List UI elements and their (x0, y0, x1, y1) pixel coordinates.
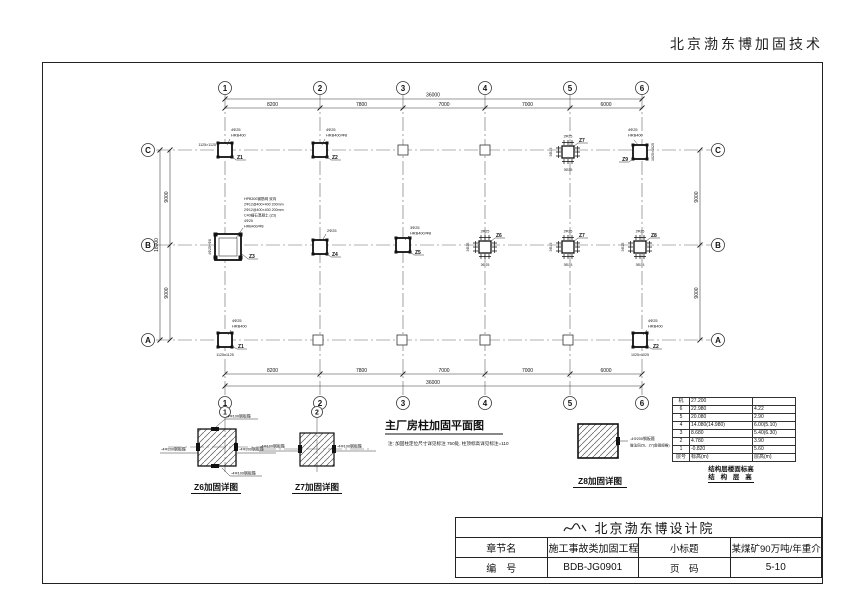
column-marker-z9-c: 4Φ25 HRB400 1025×1025 Z9 (619, 127, 655, 163)
cluster-annotation: 3Φ25 (621, 243, 625, 252)
column-marker-z2-c: 4Φ25 HRB400/Φ8 Z2 (312, 127, 348, 161)
dimension-label: 9000 (694, 191, 700, 202)
dimension-label: 9000 (164, 287, 170, 298)
axis-bubbles-bottom: 1 2 3 4 5 6 (219, 397, 649, 410)
dimension-label: 7000 (522, 102, 533, 108)
title-block: 北京渤东博设计院 章节名 施工事故类加固工程 小标题 某煤矿90万吨/年重介选煤… (455, 517, 822, 578)
table-row: 38.6805.40(6.30) (673, 430, 796, 438)
table-row: 机27.200 (673, 398, 796, 406)
axis-bubbles-left: C B A (142, 144, 155, 347)
detail-leader-label: -4Φ100钢板箍 (337, 444, 362, 449)
column-size-label: 1025×1025 (631, 353, 649, 357)
axis-bubble: 4 (483, 399, 488, 408)
dimension-label: 18000 (154, 238, 160, 252)
dimension-label: 36000 (426, 380, 440, 386)
column-size-label: 1125×1125 (198, 143, 216, 147)
detail-leader-label: 做法同Z6、Z7(角钢规格) (630, 443, 670, 448)
table-row: 1-0.8205.60 (673, 446, 796, 454)
cluster-annotation: 2Φ25 (564, 135, 573, 139)
column-label: Z7 (579, 233, 585, 239)
column-marker-z1-c: 4Φ25 HRB400 1125×1125 Z1 (198, 127, 246, 161)
axis-bubble: B (145, 241, 151, 250)
floor-cell: 4.22 (753, 406, 796, 414)
institute-row: 北京渤东博设计院 (456, 518, 822, 538)
axis-bubble: 6 (640, 84, 645, 93)
floor-cell: 3 (673, 430, 690, 438)
floor-elevation-table: 机27.200 622.9804.22 520.0802.90 414.080(… (672, 397, 790, 483)
column-label: Z1 (238, 344, 244, 350)
cluster-annotation: 3Φ25 (564, 168, 573, 172)
column-annotation: HRB400/Φ8 (244, 225, 263, 229)
detail-title: Z8加固详图 (578, 476, 622, 486)
axis-bubble: A (715, 336, 721, 345)
dimension-label: 9000 (694, 287, 700, 298)
cluster-annotation: 3Φ25 (549, 243, 553, 252)
column-label: Z9 (622, 157, 628, 163)
column-marker-z4: 2Φ25 Z4 (312, 228, 342, 258)
column-marker-z1-a: 4Φ25 HRB400 1125×1125 Z1 (216, 318, 247, 357)
floor-cell: 5.60 (753, 446, 796, 454)
floor-cell: 5 (673, 414, 690, 422)
column-label: Z8 (651, 233, 657, 239)
detail-z7: 2 -4Φ100钢板箍 -4Φ100钢板箍 Z7加固详图 (259, 407, 376, 494)
column-label: Z6 (496, 233, 502, 239)
column-annotation: HPB300钢筋网 双向 (244, 196, 277, 201)
column-marker-z7: 2Φ25 3Φ25 3Φ25 Z7 (549, 230, 588, 268)
dimension-label: 7800 (356, 368, 367, 374)
cluster-annotation: 3Φ25 (466, 243, 470, 252)
column-marker-z7-c: 2Φ25 3Φ25 3Φ25 Z7 (549, 135, 588, 173)
titleblock-value: 某煤矿90万吨/年重介选煤厂加固说明 (730, 538, 822, 558)
column-annotation: 4Φ25 (232, 318, 242, 323)
column-side-annotation: 4Φ25+Φ8 (208, 239, 212, 255)
axis-bubble: 3 (401, 84, 406, 93)
table-row: 24.7803.90 (673, 438, 796, 446)
dimension-label: 8200 (267, 102, 278, 108)
column-annotation: 4Φ25 (231, 127, 241, 132)
detail-title: Z6加固详图 (194, 482, 238, 492)
table-row: 414.080(14.980)6.00(5.10) (673, 422, 796, 430)
column-annotation: 4Φ25 (648, 318, 658, 323)
detail-z6: 1 -4Φ100钢板箍 -4Φ200钢板箍 -4Φ200钢板箍 -4Φ100钢板… (160, 407, 276, 494)
titleblock-label: 编 号 (456, 558, 548, 578)
floor-cell: 22.980 (690, 406, 753, 414)
column-marker-z5: 3Φ25 HRB400/Φ8 Z5 (395, 225, 432, 256)
column-label: Z1 (237, 155, 243, 161)
floor-table-caption: 结构层楼面标高 (672, 466, 790, 474)
floor-cell: 4 (673, 422, 690, 430)
column-annotation: 4Φ25 (244, 219, 253, 223)
detail-z8: -4Φ200钢板箍 做法同Z6、Z7(角钢规格) Z8加固详图 (573, 424, 670, 488)
axis-bubble: 2 (315, 410, 319, 417)
detail-leader-label: -4Φ100钢板箍 (260, 444, 285, 449)
column-annotation: C40细石混凝土 (Z3) (244, 213, 276, 218)
floor-cell: 层高(m) (753, 454, 796, 462)
dimensions-bottom: 8200 7800 7000 7000 6000 36000 (223, 368, 645, 389)
column-marker-z8: 2Φ25 3Φ25 3Φ25 Z8 (621, 230, 660, 268)
column-label: Z2 (332, 155, 338, 161)
column-annotation: HRB400 (648, 324, 664, 329)
axis-bubble: B (715, 241, 721, 250)
column-label: Z3 (249, 254, 255, 260)
column-annotation: HRB400 (231, 133, 247, 138)
dimension-label: 6000 (600, 368, 611, 374)
dimensions-top: 36000 8200 7800 7000 7000 6000 (223, 93, 645, 111)
column-marker-z3: HPB300钢筋网 双向 2Φ12@400×400 200mm 2Φ12@400… (208, 196, 284, 260)
plan-title: 主厂房柱加固平面图 (385, 418, 484, 432)
floor-cell: 6.00(5.10) (753, 422, 796, 430)
floor-cell: 8.680 (690, 430, 753, 438)
cluster-annotation: 3Φ25 (636, 263, 645, 267)
dimension-label: 7000 (438, 102, 449, 108)
axis-bubble: 3 (401, 399, 406, 408)
axis-bubble: 2 (318, 84, 323, 93)
axis-bubble: C (145, 146, 151, 155)
titleblock-value: 5-10 (730, 558, 822, 578)
detail-leader-label: -4Φ100钢板箍 (226, 414, 251, 419)
column-label: Z7 (579, 138, 585, 144)
floor-cell (753, 398, 796, 406)
axis-bubble: A (145, 336, 151, 345)
table-row: 622.9804.22 (673, 406, 796, 414)
plan-title-group: 主厂房柱加固平面图 注: 加固柱定位尺寸详见标注 750处, 柱顶标高详见标注=… (385, 418, 509, 447)
cluster-annotation: 2Φ25 (564, 230, 573, 234)
cluster-annotation: 3Φ25 (564, 263, 573, 267)
titleblock-value: BDB-JG0901 (547, 558, 639, 578)
column-label: Z5 (415, 250, 421, 256)
column-marker-z2-a: 4Φ25 HRB400 1025×1025 Z2 (631, 318, 664, 357)
dimension-label: 7000 (522, 368, 533, 374)
axis-bubble: 4 (483, 84, 488, 93)
dimension-label: 7000 (438, 368, 449, 374)
column-annotation: 2Φ25 (327, 228, 337, 233)
column-label: Z2 (653, 344, 659, 350)
plan-note: 注: 加固柱定位尺寸详见标注 750处, 柱顶标高详见标注=110 (388, 440, 509, 447)
floor-cell: 6 (673, 406, 690, 414)
floor-cell: 1 (673, 446, 690, 454)
detail-leader-label: -4Φ200钢板箍 (630, 436, 655, 441)
titleblock-label: 章节名 (456, 538, 548, 558)
cluster-annotation: 2Φ25 (481, 230, 490, 234)
floor-cell: 2 (673, 438, 690, 446)
table-row: 层号标高(m)层高(m) (673, 454, 796, 462)
dimension-label: 8200 (267, 368, 278, 374)
titleblock-value: 施工事故类加固工程 (547, 538, 639, 558)
column-size-label: 1025×1025 (651, 143, 655, 161)
floor-cell: 14.080(14.980) (690, 422, 753, 430)
institute-name: 北京渤东博设计院 (594, 518, 714, 537)
institute-logo-icon (562, 521, 588, 535)
floor-cell: 层号 (673, 454, 690, 462)
axis-bubble: 6 (640, 399, 645, 408)
floor-cell: 标高(m) (690, 454, 753, 462)
floor-cell: 3.90 (753, 438, 796, 446)
drawing-sheet-page: 北京渤东博加固技术 (0, 0, 863, 609)
floor-cell: 机 (673, 398, 690, 406)
floor-cell: 27.200 (690, 398, 753, 406)
dimension-label: 9000 (164, 191, 170, 202)
cluster-annotation: 3Φ25 (549, 148, 553, 157)
column-annotation: HRB400/Φ8 (410, 231, 431, 236)
detail-leader-label: -4Φ100钢板箍 (231, 471, 256, 476)
column-annotation: HRB400/Φ8 (326, 133, 347, 138)
cluster-annotation: 3Φ25 (481, 263, 490, 267)
axis-bubble: 5 (568, 84, 573, 93)
floor-table-caption: 结 构 层 高 (708, 474, 753, 483)
column-annotation: HRB400 (628, 133, 644, 138)
titleblock-label: 小标题 (639, 538, 731, 558)
detail-title: Z7加固详图 (295, 482, 339, 492)
axis-bubble: 5 (568, 399, 573, 408)
floor-cell: 5.40(6.30) (753, 430, 796, 438)
dimension-label: 7800 (356, 102, 367, 108)
table-row: 520.0802.90 (673, 414, 796, 422)
column-marker-z6: 2Φ25 3Φ25 3Φ25 Z6 (466, 230, 505, 268)
column-annotation: 3Φ25 (410, 225, 420, 230)
column-annotation: 2Φ12@400×400 200mm (244, 203, 284, 207)
column-size-label: 1125×1125 (216, 353, 234, 357)
column-annotation: 4Φ25 (628, 127, 638, 132)
floor-cell: 20.080 (690, 414, 753, 422)
dimension-label: 36000 (426, 93, 440, 99)
dimension-label: 6000 (600, 102, 611, 108)
detail-leader-label: -4Φ200钢板箍 (161, 447, 186, 452)
column-annotation: HRB400 (232, 324, 248, 329)
floor-cell: -0.820 (690, 446, 753, 454)
column-label: Z4 (332, 252, 338, 258)
floor-cell: 4.780 (690, 438, 753, 446)
axis-bubble: C (715, 146, 721, 155)
axis-bubble: 1 (223, 84, 228, 93)
cluster-annotation: 2Φ25 (636, 230, 645, 234)
column-annotation: 4Φ25 (326, 127, 336, 132)
floor-cell: 2.90 (753, 414, 796, 422)
axis-bubbles-right: C B A (712, 144, 725, 347)
titleblock-label: 页 码 (639, 558, 731, 578)
column-annotation: 2Φ12@400×400 200mm (244, 208, 284, 212)
